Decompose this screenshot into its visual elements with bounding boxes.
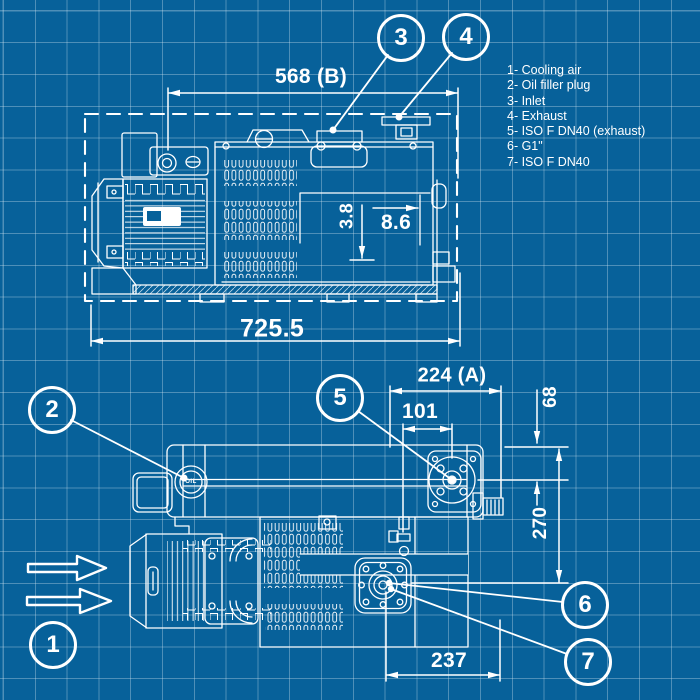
latch [317, 131, 362, 142]
legend-item: 1- Cooling air [507, 63, 645, 78]
dim-oil-min-label: 3.8 [337, 203, 358, 229]
legend-item: 5- ISO F DN40 (exhaust) [507, 124, 645, 139]
leader-line-4 [399, 53, 452, 117]
vent-louvres [222, 252, 297, 278]
callout-7-number: 7 [581, 650, 594, 674]
dim-237-label: 237 [431, 649, 467, 673]
callout-1-number: 1 [46, 633, 59, 657]
blueprint-page: 1- Cooling air 2- Oil filler plug 3- Inl… [0, 0, 700, 700]
callout-6-number: 6 [578, 593, 591, 617]
legend-item: 4- Exhaust [507, 109, 645, 124]
vent-louvres [265, 604, 343, 630]
callout-4-number: 4 [459, 25, 472, 49]
legend-item: 6- G1" [507, 139, 645, 154]
dim-568-b-label: 568 (B) [275, 65, 347, 89]
dim-101-label: 101 [402, 400, 438, 424]
legend-item: 3- Inlet [507, 94, 645, 109]
vent-louvres [222, 160, 297, 186]
dim-568-lines [168, 88, 458, 178]
cooling-air-arrows [27, 556, 111, 613]
callout-6: 6 [561, 581, 609, 629]
callout-3-number: 3 [394, 26, 407, 50]
dim-270-label: 270 [530, 507, 552, 540]
vent-louvres [222, 201, 297, 240]
callout-1: 1 [29, 621, 77, 669]
legend-item: 7- ISO F DN40 [507, 155, 645, 170]
callout-5-number: 5 [333, 386, 346, 410]
oil-sight-glass [158, 154, 176, 172]
callout-7: 7 [564, 638, 612, 686]
callout-5: 5 [316, 374, 364, 422]
dim-224-a-label: 224 (A) [418, 365, 487, 388]
dim-oil-max-label: 8.6 [381, 211, 411, 235]
exhaust-flange-side [382, 117, 430, 125]
callout-2: 2 [28, 386, 76, 434]
dim-total-length-label: 725.5 [240, 315, 304, 344]
callout-2-number: 2 [45, 398, 58, 422]
callout-4: 4 [442, 13, 490, 61]
oil-plug-label: OIL [185, 479, 197, 485]
callout-3: 3 [377, 14, 425, 62]
shaft-coupling [483, 498, 503, 515]
dim-68-label: 68 [540, 386, 562, 408]
legend: 1- Cooling air 2- Oil filler plug 3- Inl… [507, 63, 645, 170]
legend-item: 2- Oil filler plug [507, 78, 645, 93]
